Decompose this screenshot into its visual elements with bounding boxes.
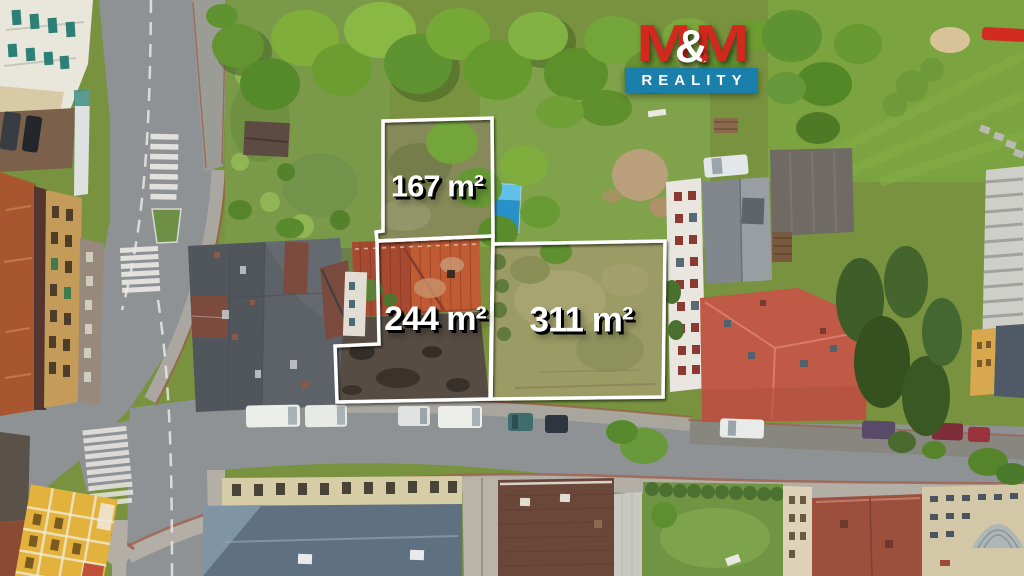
logo-ampersand: &★: [675, 27, 708, 66]
white-car: [398, 406, 430, 426]
block-top-left: [0, 0, 93, 196]
white-van: [246, 405, 300, 428]
sand-patch: [930, 27, 970, 53]
traffic-island: [152, 209, 181, 243]
dark-roofs: [0, 432, 30, 522]
aerial-photo: 167 m² 244 m² 311 m² M &★ M REALITY: [0, 0, 1024, 576]
plot-area-label-167: 167 m²: [391, 171, 483, 202]
playground-slide: [982, 27, 1024, 42]
star-icon: ★: [699, 51, 712, 65]
photo-scene: [0, 0, 1024, 576]
dark-car: [545, 415, 568, 433]
yellow-house: [970, 328, 996, 396]
picnic-table: [714, 118, 738, 133]
pergola: [772, 232, 792, 262]
red-brown-roof: [812, 494, 922, 576]
parked-van: [703, 154, 749, 178]
mm-reality-logo: M &★ M REALITY: [625, 21, 758, 93]
logo-wordmark: M &★ M: [625, 21, 758, 66]
plot-area-label-244: 244 m²: [384, 302, 486, 336]
teal-car: [508, 413, 533, 431]
cream-building: [783, 486, 812, 576]
roof-dormer: [283, 242, 309, 295]
plot-area-label-311: 311 m²: [530, 303, 633, 338]
white-car: [720, 418, 765, 439]
red-car: [968, 427, 991, 443]
white-van: [438, 406, 482, 428]
white-van: [305, 405, 347, 428]
